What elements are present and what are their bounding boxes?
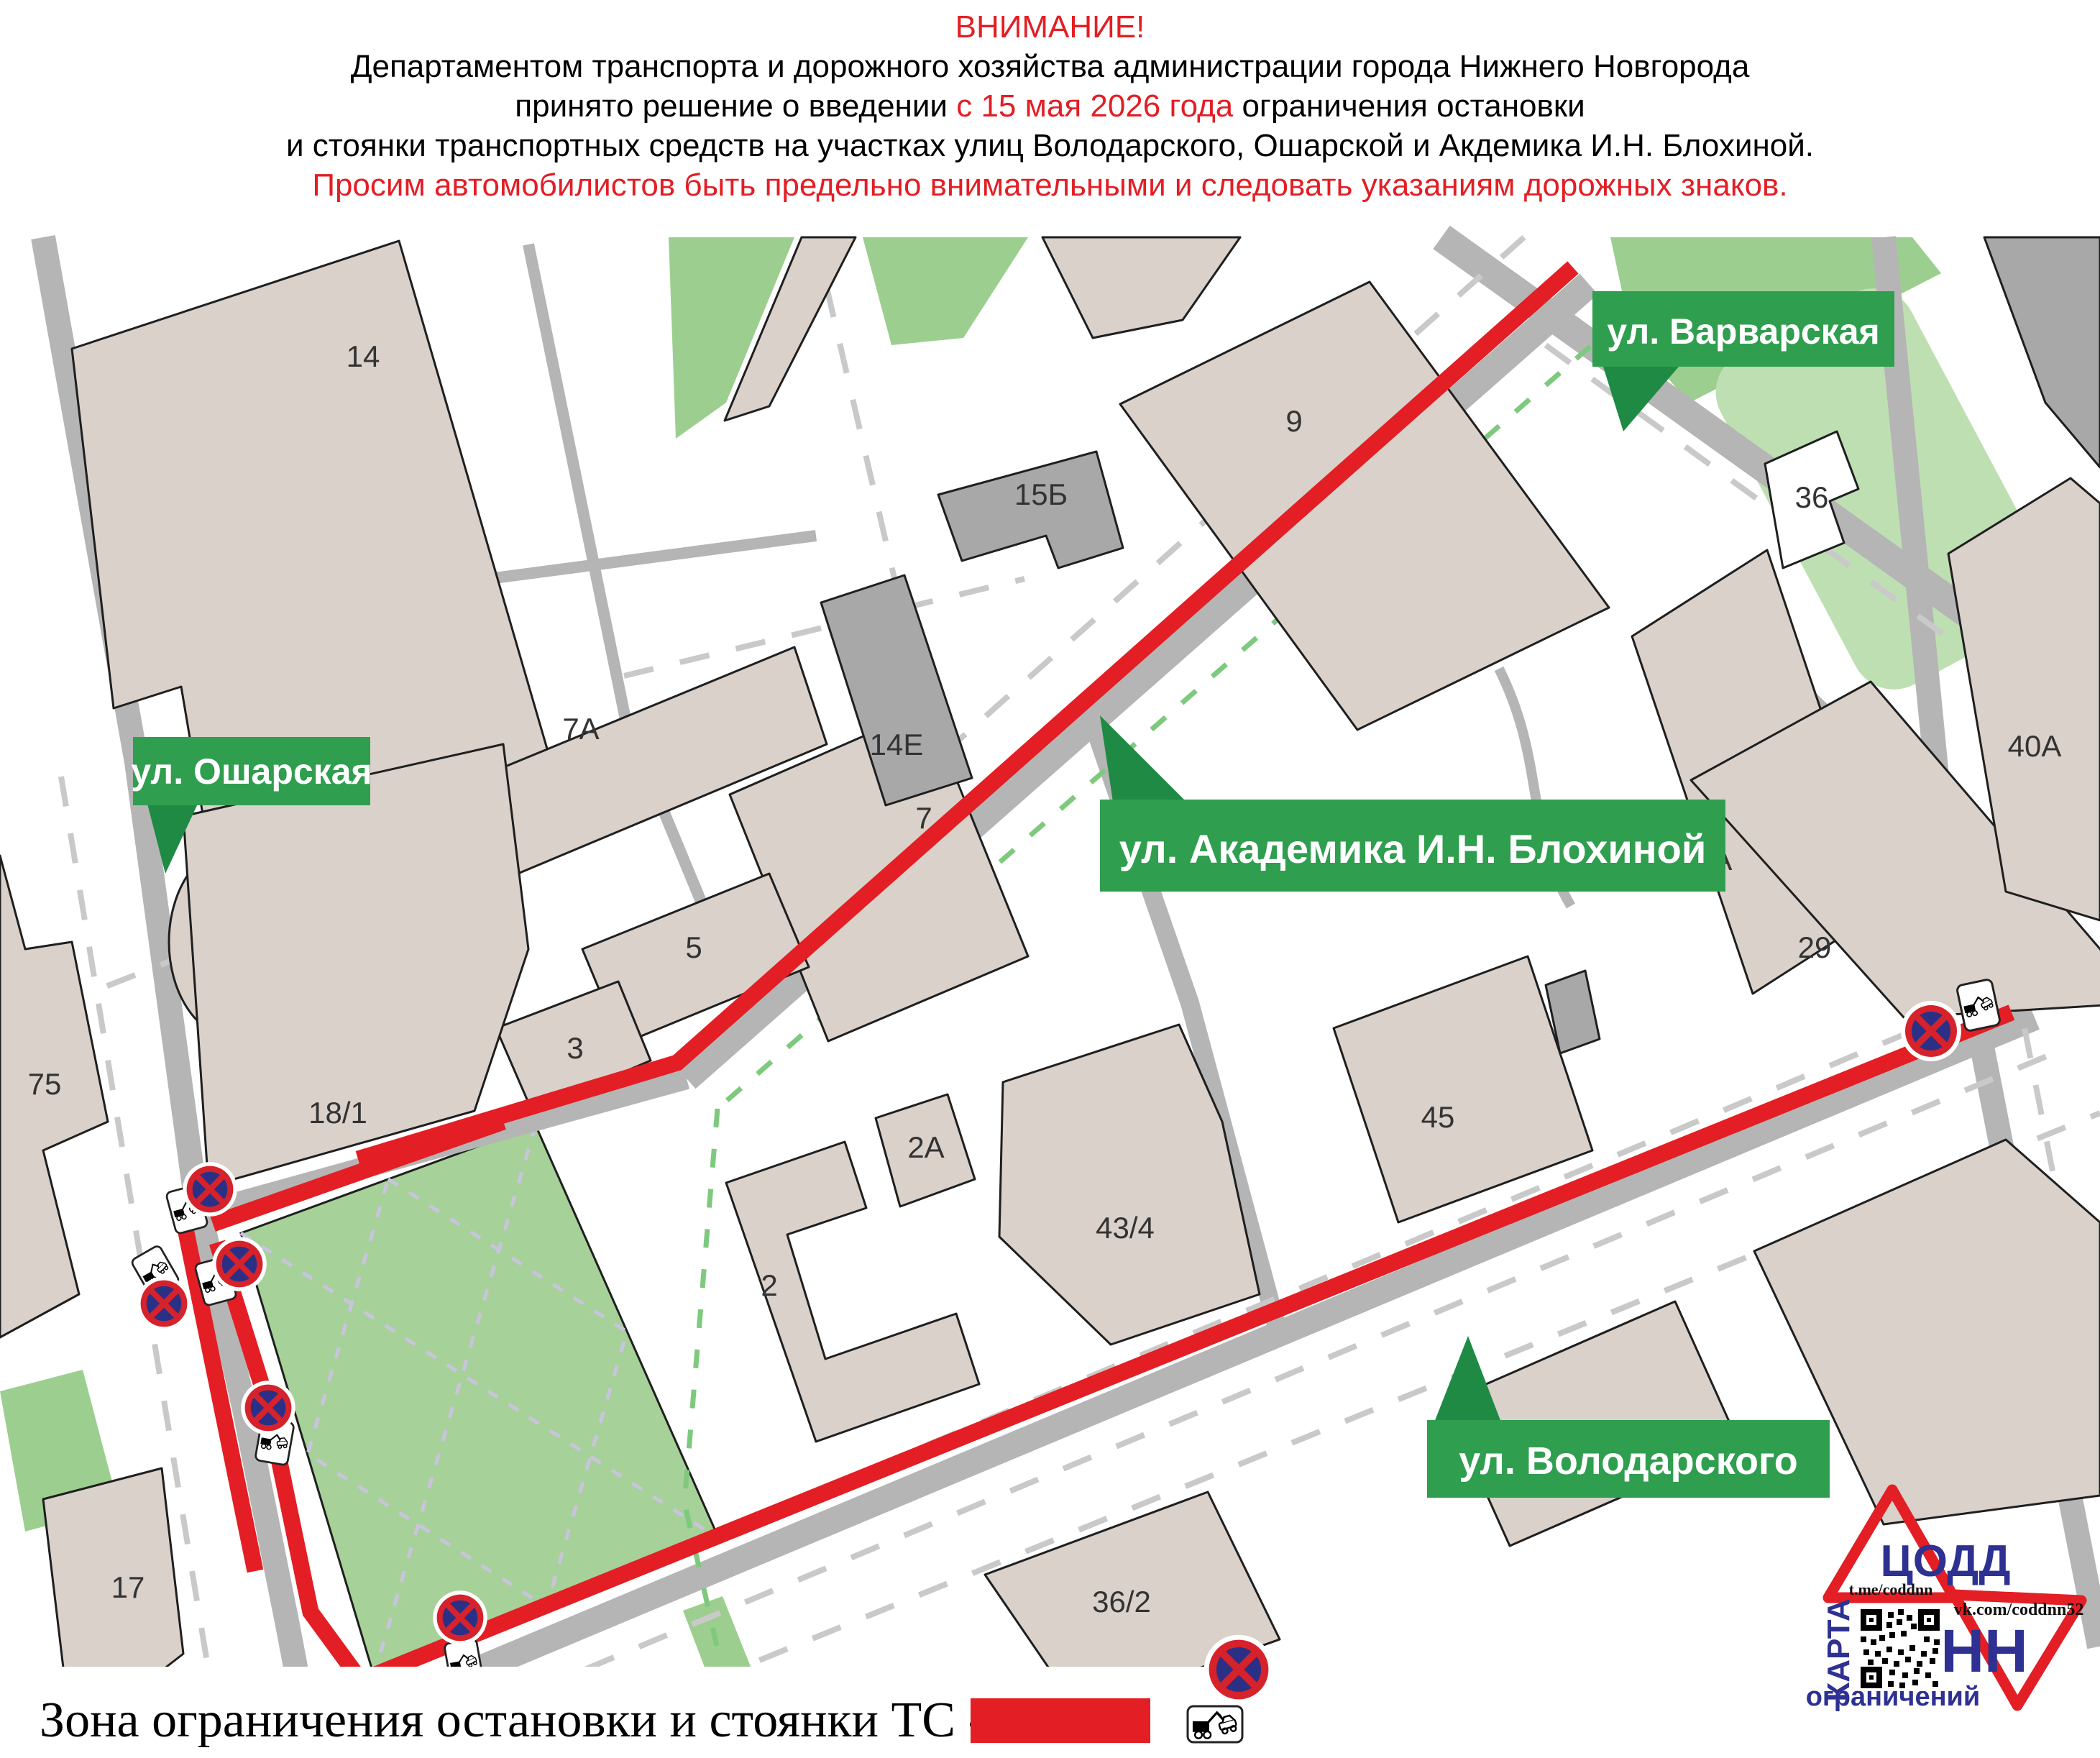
building-number: 3: [567, 1031, 583, 1065]
header-line3-post: ограничения остановки: [1233, 88, 1585, 124]
no-stopping-sign-icon: [1901, 1001, 1961, 1061]
map: 14 14Е 15Б 7А 7 9 5 3 18/1 75 17 2 2А 43…: [0, 0, 2100, 1758]
building-number: 29: [1798, 930, 1832, 964]
header-date: с 15 мая 2026 года: [956, 88, 1233, 124]
header-line3: принято решение о введении с 15 мая 2026…: [0, 86, 2100, 126]
header-line2: Департаментом транспорта и дорожного хоз…: [0, 47, 2100, 86]
building-number: 18/1: [308, 1096, 367, 1130]
building-number: 36: [1795, 480, 1829, 514]
building-number: 15Б: [1014, 477, 1068, 511]
header-line3-pre: принято решение о введении: [515, 88, 956, 124]
building-number: 2: [761, 1268, 777, 1302]
building-number: 17: [111, 1570, 145, 1604]
logo-telegram-link: t.me/coddnn: [1849, 1580, 1933, 1598]
building-number: 14: [347, 339, 380, 373]
no-stopping-sign-icon: [137, 1276, 191, 1331]
building-number: 9: [1285, 404, 1302, 438]
street-label-text: ул. Ошарская: [131, 751, 372, 792]
building-number: 40А: [2008, 729, 2062, 763]
street-label-text: ул. Варварская: [1607, 311, 1879, 352]
qr-code: [1858, 1606, 1943, 1691]
building-number: 5: [685, 930, 702, 964]
no-stopping-sign-icon: [212, 1237, 267, 1291]
legend-tow-plate-icon: [1188, 1706, 1242, 1742]
header: ВНИМАНИЕ! Департаментом транспорта и дор…: [0, 7, 2100, 205]
building-number: 36/2: [1092, 1585, 1151, 1619]
building-number: 45: [1421, 1100, 1455, 1134]
building-number: 43/4: [1096, 1211, 1155, 1245]
header-title: ВНИМАНИЕ!: [0, 7, 2100, 47]
header-line5: Просим автомобилистов быть предельно вни…: [0, 165, 2100, 205]
legend-red-line-swatch: [971, 1698, 1150, 1743]
logo-city-text: НН: [1940, 1617, 2027, 1685]
no-stopping-sign-icon: [241, 1381, 295, 1435]
legend-no-stopping-sign-icon: [1204, 1635, 1274, 1705]
street-label-text: ул. Володарского: [1459, 1439, 1798, 1483]
building-number: 2А: [907, 1130, 944, 1164]
poster: ВНИМАНИЕ! Департаментом транспорта и дор…: [0, 0, 2100, 1758]
building-number: 7А: [562, 712, 599, 746]
logo-org-text: ЦОДД: [1880, 1537, 2010, 1586]
legend-text: Зона ограничения остановки и стоянки ТС …: [40, 1693, 985, 1748]
no-stopping-sign-icon: [433, 1590, 487, 1645]
header-line4: и стоянки транспортных средств на участк…: [0, 126, 2100, 165]
no-stopping-sign-icon: [183, 1162, 237, 1217]
building-number: 75: [28, 1067, 62, 1101]
building-number: 14Е: [870, 728, 924, 761]
street-label-text: ул. Академика И.Н. Блохиной: [1119, 826, 1707, 871]
